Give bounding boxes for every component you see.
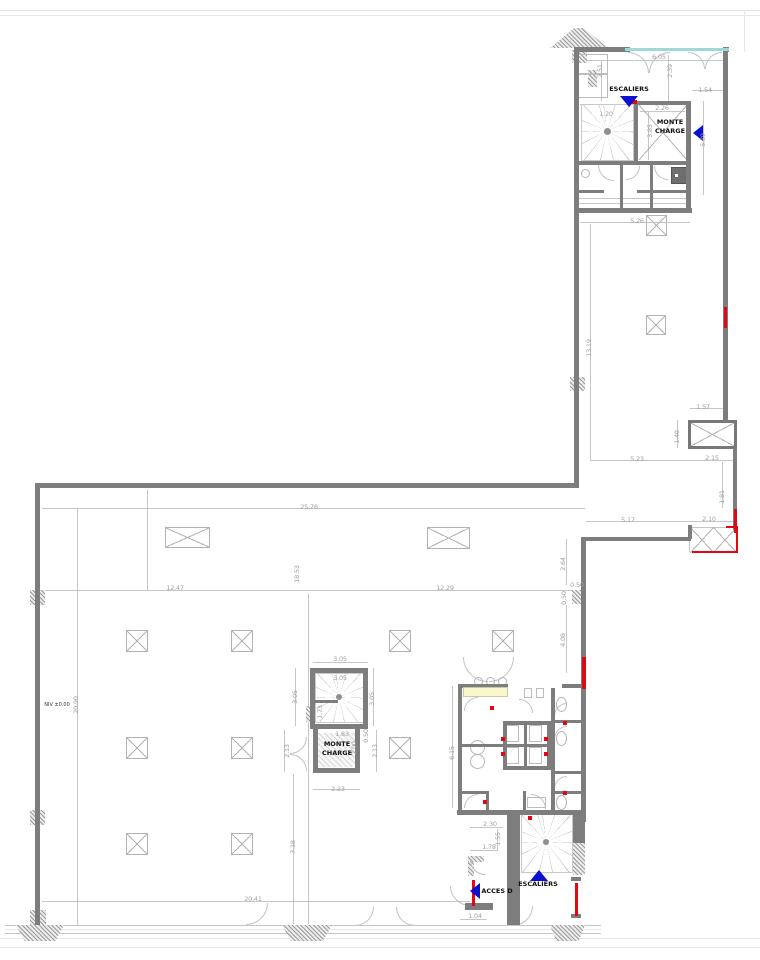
wall-segment (503, 744, 551, 747)
door-swing-arc (598, 165, 614, 181)
label-escaliers-top: ESCALIERS (609, 85, 649, 93)
dimension-text: 1.57 (696, 403, 710, 411)
wall-segment (578, 161, 690, 165)
column-symbol (492, 630, 514, 652)
door-swing-arc (464, 697, 478, 711)
dimension-text: 2.26 (655, 104, 669, 112)
label-monte-charge-top: MONTE (657, 118, 683, 126)
wall-segment (310, 668, 315, 725)
wall-segment (465, 903, 493, 910)
dimension-text: 3.05 (368, 692, 376, 706)
drawing-line (0, 938, 760, 939)
dimension-text: 2.39 (666, 64, 674, 78)
drawing-line (0, 947, 760, 948)
wall-segment (574, 47, 579, 212)
label-monte-charge-center: MONTE (324, 740, 350, 748)
fixture-rect (529, 747, 542, 764)
label-monte-charge-center: CHARGE (322, 749, 352, 757)
dimension-text: 3.05 (333, 655, 347, 663)
stair-hub (543, 839, 549, 845)
dimension-text: 5.26 (630, 217, 644, 225)
fixture-ellipse (556, 795, 567, 810)
dimension-text: 3.05 (333, 674, 347, 682)
dimension-text: 25.76 (300, 503, 318, 511)
wall-segment (578, 208, 692, 213)
red-accent (582, 657, 586, 689)
column-symbol (389, 630, 411, 652)
stairs-up-arrow (620, 96, 638, 107)
drawing-line (42, 590, 585, 591)
red-accent (736, 527, 738, 553)
drawing-line (147, 490, 148, 590)
dimension-text: 12.29 (436, 584, 454, 592)
stair-hub (604, 128, 611, 135)
dimension-text: 1.04 (468, 912, 482, 920)
wall-segment (459, 791, 489, 794)
dimension-text: 13.19 (585, 339, 593, 357)
dimension-text: 1.83 (335, 730, 349, 738)
column-symbol (646, 315, 666, 335)
wall-segment (562, 684, 583, 688)
dimension-text: 20.41 (244, 895, 262, 903)
drawing-line (77, 508, 78, 925)
dimension-text: 4.08 (559, 633, 567, 647)
label-niveau: NIV ±0.00 (44, 702, 70, 708)
dimension-text: 3.85 (646, 124, 654, 138)
equipment-marker (490, 706, 494, 710)
drawing-line (308, 594, 309, 924)
wall-segment (585, 537, 691, 541)
equipment-marker (501, 737, 505, 741)
dimension-text: 1.78 (482, 843, 496, 851)
drawing-line (0, 15, 760, 16)
column-symbol (231, 833, 253, 855)
door-swing-arc (464, 794, 478, 808)
column-symbol (231, 737, 253, 759)
fixture-rect (527, 797, 546, 808)
dimension-text: 2.10 (702, 515, 716, 523)
wall-segment (686, 101, 691, 212)
dimension-text: 12.47 (166, 584, 184, 592)
drawing-line (703, 101, 704, 195)
wall-segment (459, 744, 503, 747)
dimension-text: 5.39 (699, 133, 707, 147)
cross-symbol (690, 527, 714, 553)
dimension-text: 2.13 (371, 744, 379, 758)
dimension-text: 18.53 (293, 565, 301, 583)
wall-segment (523, 791, 526, 812)
dimension-text: 2.13 (283, 744, 291, 758)
wall-segment (634, 101, 638, 164)
wall-segment (313, 728, 318, 773)
duct-shaft (688, 420, 737, 449)
dimension-text: 20.90 (72, 696, 80, 714)
wall-segment (578, 190, 604, 193)
fixture-rect (506, 725, 519, 742)
dimension-text: 2.23 (331, 785, 345, 793)
fixture-ellipse (556, 731, 567, 746)
wall-segment (573, 811, 585, 843)
dimension-text: 2.15 (705, 454, 719, 462)
column-symbol (231, 630, 253, 652)
access-d-arrow (470, 883, 480, 899)
column-symbol (126, 737, 148, 759)
dimension-text: 1.81 (718, 490, 726, 504)
floor-plan-canvas: 6.052.512.391.542.261.203.855.395.2613.1… (0, 0, 760, 960)
column-symbol (165, 527, 210, 548)
window-strip (625, 48, 729, 51)
dimension-text: 1.73 (316, 705, 324, 719)
column-symbol (126, 630, 148, 652)
drawing-line (578, 198, 691, 199)
wall-segment (507, 815, 520, 925)
column-symbol (427, 527, 470, 549)
hatch-fill (550, 28, 608, 48)
wall-segment (315, 700, 338, 703)
dimension-text: 5.23 (630, 455, 644, 463)
wall-segment (551, 771, 583, 774)
wall-segment (503, 721, 551, 725)
equipment-marker (563, 791, 567, 795)
door-swing-arc (688, 52, 705, 69)
fixture-rect (524, 688, 532, 698)
wall-segment (620, 165, 623, 208)
equipment-marker (544, 752, 548, 756)
door-swing-arc (290, 737, 307, 754)
drawing-line (578, 203, 691, 204)
red-accent (726, 526, 738, 528)
wall-segment (571, 877, 581, 881)
drawing-line (744, 10, 745, 52)
wall-segment (574, 212, 579, 488)
label-monte-charge-top: CHARGE (655, 127, 685, 135)
wall-segment (688, 525, 692, 539)
red-accent (724, 307, 727, 328)
dimension-text: 0.50 (560, 591, 568, 605)
wall-segment (551, 720, 583, 723)
hatch-fill (573, 843, 585, 875)
door-swing-arc (628, 52, 649, 73)
fixture-circle (581, 169, 590, 178)
equipment-marker (501, 752, 505, 756)
column-symbol (646, 215, 667, 236)
equipment-marker (544, 737, 548, 741)
fixture-rect (506, 747, 519, 764)
door-swing-arc (246, 903, 268, 925)
wall-segment (313, 768, 360, 773)
dimension-text: 7.18 (289, 840, 297, 854)
door-swing-arc (396, 907, 415, 926)
dimension-text: 1.54 (698, 86, 712, 94)
fixture-circle (470, 740, 485, 755)
fixture-circle (470, 754, 485, 769)
label-escaliers-bottom: ESCALIERS (518, 880, 558, 888)
red-accent (692, 551, 738, 553)
label-acces-d: ACCES D (481, 887, 512, 895)
column-symbol (126, 833, 148, 855)
door-swing-arc (290, 754, 307, 771)
door-swing-arc (705, 52, 722, 69)
dimension-text: 5.17 (621, 516, 635, 524)
dimension-text: 1.20 (599, 110, 613, 118)
wall-segment (35, 483, 579, 488)
door-swing-arc (554, 776, 567, 789)
fixture-rect (529, 725, 542, 742)
door-swing-arc (654, 166, 668, 180)
dimension-text: 6.05 (652, 53, 666, 61)
fixture-ellipse (556, 697, 567, 712)
wall-segment (35, 488, 40, 925)
equipment-marker (563, 721, 567, 725)
dimension-text: 2.51 (596, 64, 604, 78)
red-accent (575, 883, 578, 916)
dimension-text: 6.15 (448, 746, 456, 760)
door-swing-arc (626, 166, 640, 180)
dimension-text: 1.40 (673, 430, 681, 444)
equipment-marker (483, 800, 487, 804)
equipment-marker (528, 816, 532, 820)
dimension-text: 2.64 (559, 557, 567, 571)
dimension-text: 2.30 (483, 820, 497, 828)
wall-segment (574, 47, 630, 52)
column-symbol (389, 737, 411, 759)
wall-segment (457, 810, 585, 815)
wall-segment (723, 52, 728, 422)
wall-segment (551, 791, 583, 794)
dimension-text: 3.05 (291, 690, 299, 704)
dimension-text: 0.50 (570, 581, 584, 589)
drawing-line (0, 10, 760, 11)
door-swing-arc (355, 907, 374, 926)
wall-segment (637, 190, 690, 193)
fixture-rect (536, 688, 544, 698)
wall-segment (310, 668, 368, 673)
dimension-text: 0.50 (362, 729, 370, 743)
wall-segment (650, 165, 653, 208)
counter-strip (463, 687, 508, 697)
door-swing-arc (519, 699, 533, 713)
wall-segment (503, 766, 551, 770)
